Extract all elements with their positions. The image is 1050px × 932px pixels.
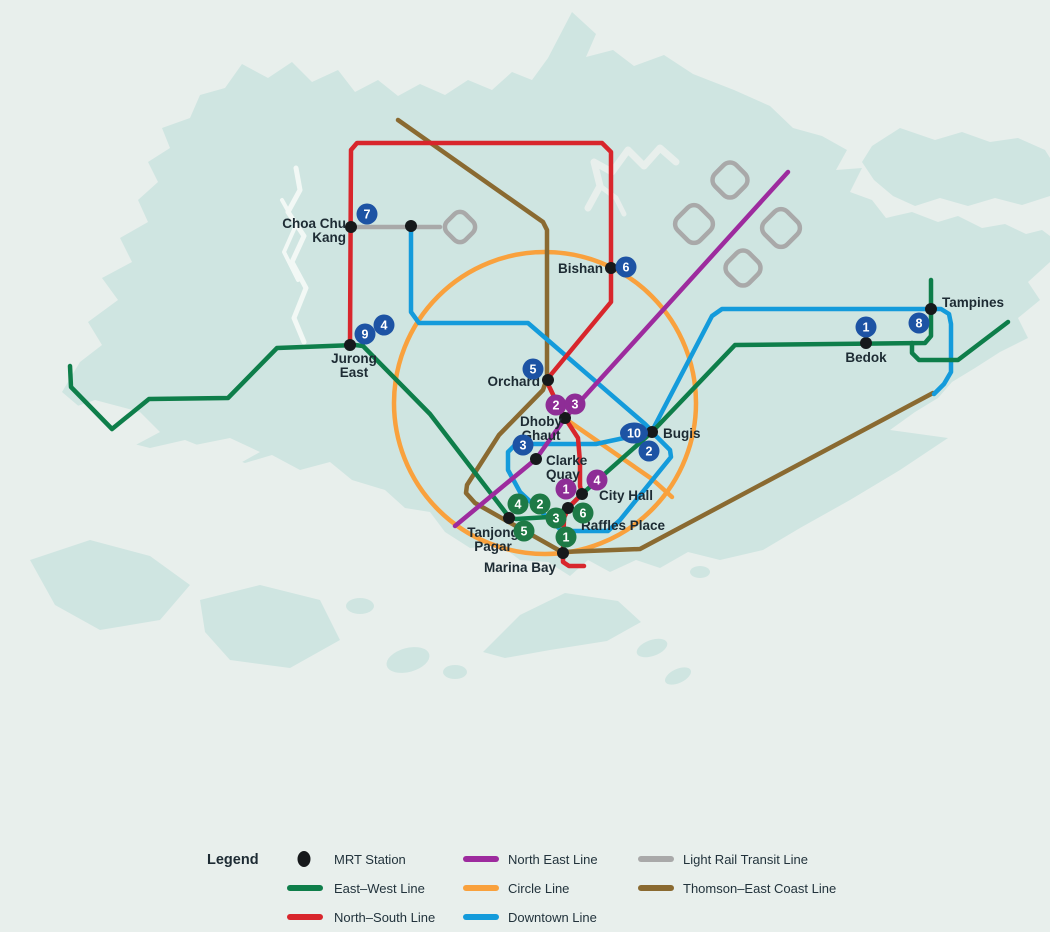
badge-blue-10: 10 (620, 423, 648, 444)
legend-label-mrt-station: MRT Station (334, 852, 406, 867)
label-choa-chu-kang-2: Kang (312, 230, 346, 245)
label-raffles-place: Raffles Place (581, 518, 666, 533)
legend-swatch-downtown (463, 914, 499, 920)
station-dot-choa-chu-kang (345, 221, 357, 233)
badge-number: 2 (553, 399, 560, 413)
station-dot-tampines (925, 303, 937, 315)
label-tanjong-pagar-1: Tanjong (467, 525, 519, 540)
legend-label-north-east: North East Line (508, 852, 598, 867)
badge-green-1: 1 (556, 527, 577, 548)
legend-swatch-north-south (287, 914, 323, 920)
label-city-hall: City Hall (599, 488, 653, 503)
small-island (443, 665, 467, 679)
badge-blue-7: 7 (357, 204, 378, 225)
badge-purple-2: 2 (546, 395, 567, 416)
badge-number: 3 (553, 512, 560, 526)
legend-swatch-north-east (463, 856, 499, 862)
badge-blue-1: 1 (856, 317, 877, 338)
station-dot-marina-bay (557, 547, 569, 559)
label-choa-chu-kang-1: Choa Chu (282, 216, 346, 231)
station-dot-jurong-east (344, 339, 356, 351)
badge-number: 3 (520, 439, 527, 453)
label-dhoby-ghaut-1: Dhoby (520, 414, 562, 429)
badge-purple-1: 1 (556, 479, 577, 500)
legend-label-north-south: North–South Line (334, 910, 435, 925)
badge-green-3: 3 (546, 508, 567, 529)
badge-number: 10 (627, 427, 641, 441)
legend-swatch-east-west (287, 885, 323, 891)
station-dot-bedok (860, 337, 872, 349)
mrt-map: Choa Chu Kang Bishan Jurong East Orchard… (0, 0, 1050, 932)
badge-green-6: 6 (573, 503, 594, 524)
label-jurong-east-1: Jurong (331, 351, 377, 366)
badge-number: 5 (521, 525, 528, 539)
badge-blue-5: 5 (523, 359, 544, 380)
badge-number: 2 (537, 498, 544, 512)
badge-number: 5 (530, 363, 537, 377)
badge-number: 4 (381, 319, 388, 333)
badge-number: 6 (580, 507, 587, 521)
label-jurong-east-2: East (340, 365, 369, 380)
station-dot-tanjong-pagar (503, 512, 515, 524)
station-dot-bishan (605, 262, 617, 274)
badge-number: 4 (515, 498, 522, 512)
badge-number: 9 (362, 328, 369, 342)
badge-number: 7 (364, 208, 371, 222)
label-bishan: Bishan (558, 261, 603, 276)
badge-green-4: 4 (508, 494, 529, 515)
station-dot-orchard (542, 374, 554, 386)
label-tampines: Tampines (942, 295, 1004, 310)
badge-blue-4: 4 (374, 315, 395, 336)
legend-label-thomson: Thomson–East Coast Line (683, 881, 836, 896)
badge-number: 3 (572, 398, 579, 412)
station-dot-clarke-quay (530, 453, 542, 465)
label-marina-bay: Marina Bay (484, 560, 557, 575)
label-tanjong-pagar-2: Pagar (474, 539, 512, 554)
badge-green-5: 5 (514, 521, 535, 542)
badge-blue-2: 2 (639, 441, 660, 462)
legend-label-lrt: Light Rail Transit Line (683, 852, 808, 867)
legend-label-downtown: Downtown Line (508, 910, 597, 925)
label-clarke-quay-1: Clarke (546, 453, 588, 468)
badge-blue-8: 8 (909, 313, 930, 334)
legend-station-dot-icon (298, 851, 311, 867)
badge-number: 1 (563, 483, 570, 497)
badge-number: 6 (623, 261, 630, 275)
legend-swatch-lrt (638, 856, 674, 862)
badge-number: 8 (916, 317, 923, 331)
badge-blue-9: 9 (355, 324, 376, 345)
legend-label-circle: Circle Line (508, 881, 569, 896)
station-dot-lrt-junction (405, 220, 417, 232)
badge-blue-3: 3 (513, 435, 534, 456)
badge-green-2: 2 (530, 494, 551, 515)
small-island (346, 598, 374, 614)
badge-number: 1 (863, 321, 870, 335)
label-bugis: Bugis (663, 426, 701, 441)
badge-number: 4 (594, 474, 601, 488)
legend-label-east-west: East–West Line (334, 881, 425, 896)
label-bedok: Bedok (845, 350, 887, 365)
badge-number: 1 (563, 531, 570, 545)
station-dot-city-hall (576, 488, 588, 500)
badge-blue-6: 6 (616, 257, 637, 278)
legend-swatch-thomson (638, 885, 674, 891)
badge-number: 2 (646, 445, 653, 459)
legend-title: Legend (207, 852, 259, 868)
badge-purple-4: 4 (587, 470, 608, 491)
small-island (690, 566, 710, 578)
legend-swatch-circle (463, 885, 499, 891)
badge-purple-3: 3 (565, 394, 586, 415)
